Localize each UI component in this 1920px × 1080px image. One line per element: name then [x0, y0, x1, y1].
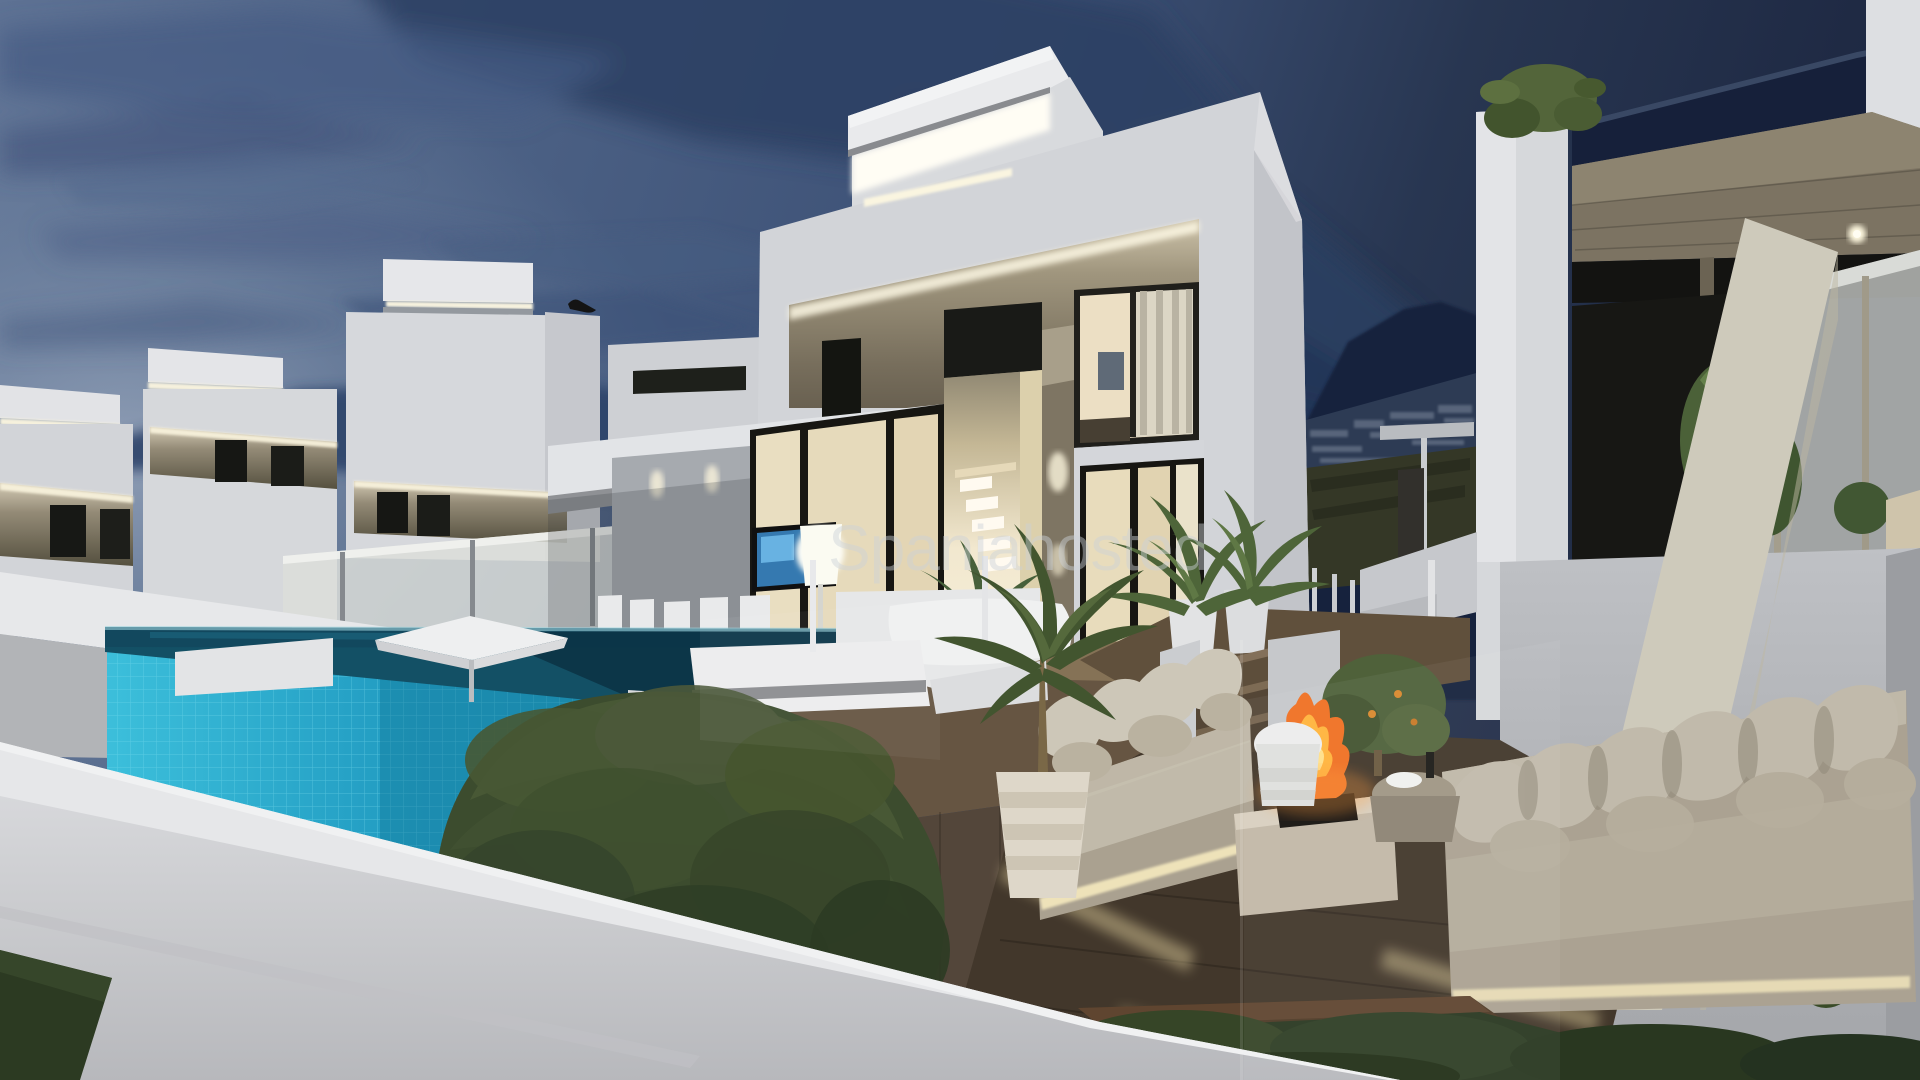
svg-text:Spaniahosted: Spaniahosted — [828, 512, 1207, 584]
